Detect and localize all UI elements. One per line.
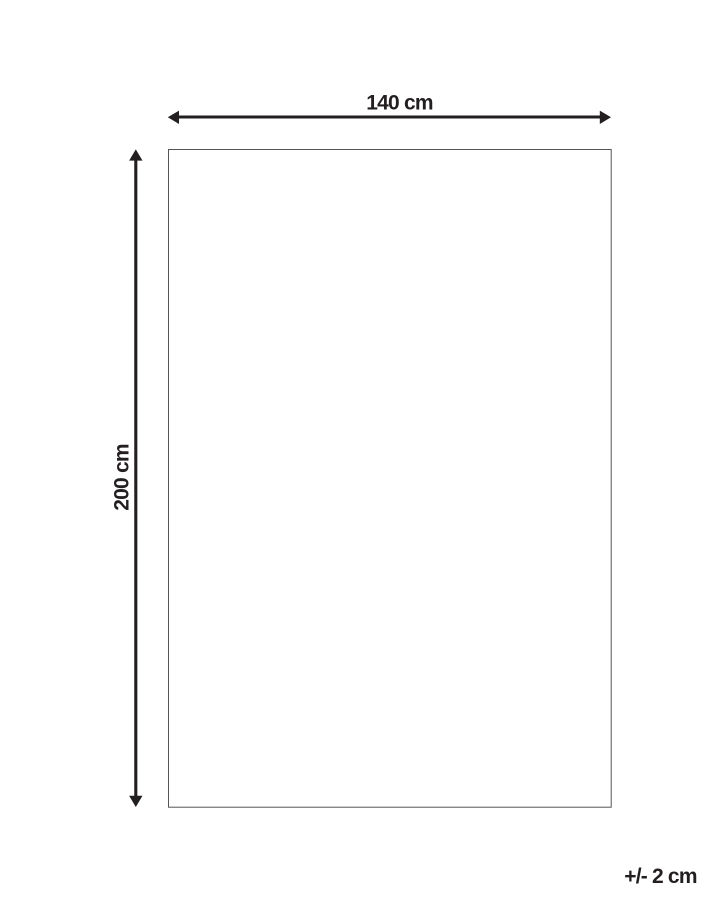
svg-text:200 cm: 200 cm [111, 444, 134, 511]
svg-text:+/- 2 cm: +/- 2 cm [624, 865, 697, 888]
svg-text:140 cm: 140 cm [366, 92, 433, 115]
